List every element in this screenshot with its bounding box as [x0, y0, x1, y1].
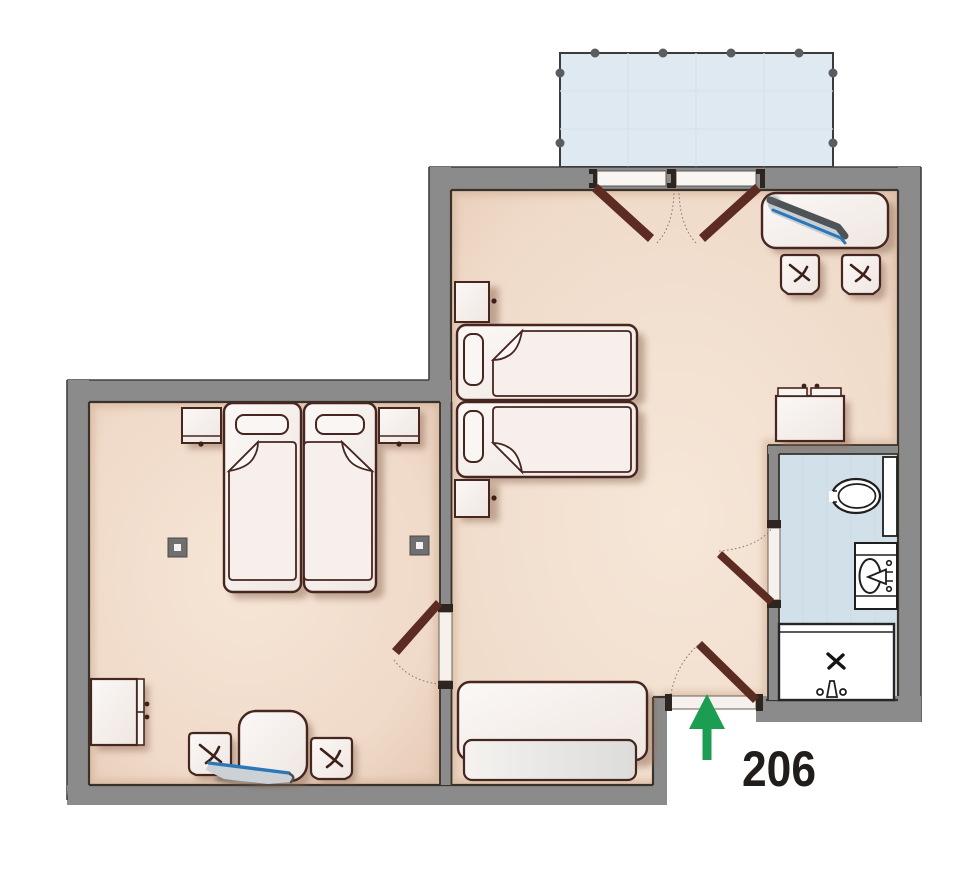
- svg-text:206: 206: [742, 741, 816, 797]
